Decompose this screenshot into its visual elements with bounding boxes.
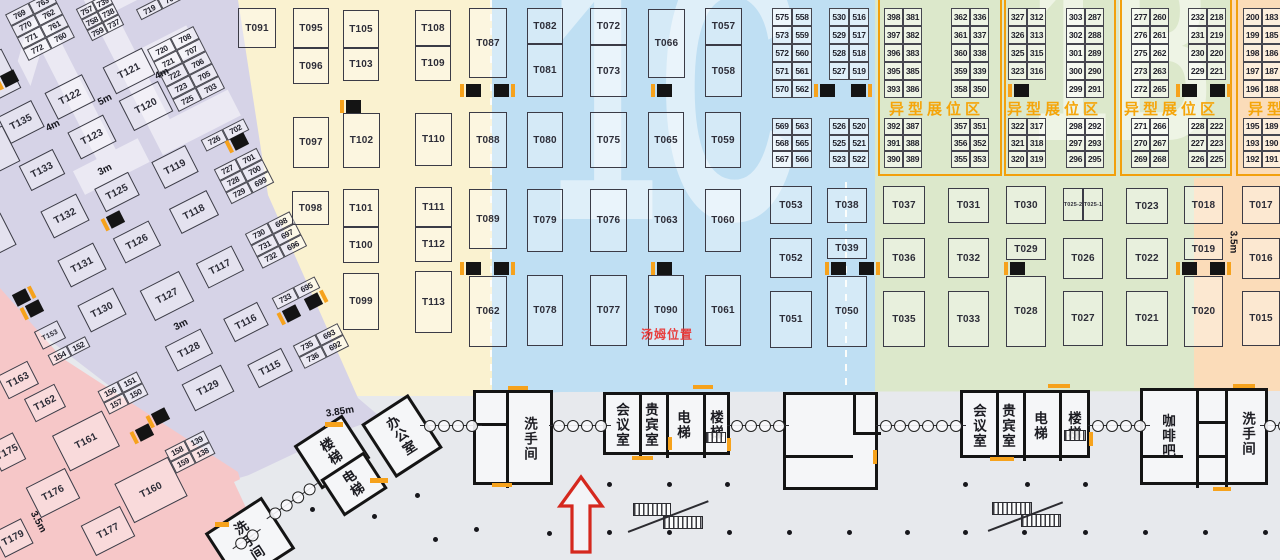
booth-T079: T079 (527, 189, 563, 252)
booth-entrance-marker (1182, 84, 1197, 97)
escalator-icon (706, 432, 726, 443)
booth-number-cell: 518 (849, 44, 869, 62)
booth-number-cell: 398 (884, 8, 903, 26)
floor-dot (1263, 530, 1268, 535)
booth-T022: T022 (1126, 238, 1168, 279)
door-strip-icon (511, 262, 515, 275)
booth-number-cell: 562 (792, 80, 812, 98)
booth-number-cell: 288 (1085, 26, 1104, 44)
booth-number-cell: 529 (829, 26, 849, 44)
booth-number-cell: 185 (1262, 26, 1280, 44)
shaped-booth-area-label: 异型展位区 (1248, 98, 1280, 119)
booth-entrance-marker (859, 262, 874, 275)
booth-number-cell: 273 (1131, 62, 1150, 80)
room-wall (639, 395, 642, 458)
booth-T057: T057 (705, 8, 742, 45)
door-marker (873, 450, 877, 464)
booth-number-cell: 226 (1188, 151, 1207, 168)
booth-number-cell: 527 (829, 62, 849, 80)
floor-dot (474, 527, 479, 532)
booth-number-cell: 191 (1262, 151, 1280, 168)
booth-number-pair-column: 526520525521523522 (829, 118, 869, 168)
exhibition-floorplan-canvas: 1E1C1B5755585735595725605715615705625695… (0, 0, 1280, 560)
booth-number-cell: 289 (1085, 44, 1104, 62)
booth-number-cell: 358 (951, 80, 970, 98)
booth-T050: T050 (827, 276, 867, 347)
column-circle (452, 420, 464, 432)
booth-T075: T075 (590, 112, 627, 168)
door-marker (508, 386, 528, 390)
column-circle (880, 420, 892, 432)
room-wall (506, 393, 509, 488)
booth-entrance-marker (494, 262, 509, 275)
door-strip-icon (651, 262, 655, 275)
booth-number-cell: 198 (1243, 44, 1262, 62)
booth-number-cell: 338 (970, 44, 989, 62)
door-marker (693, 385, 713, 389)
booth-T097: T097 (293, 117, 329, 168)
booth-number-cell: 222 (1207, 118, 1226, 135)
booth-number-cell: 219 (1207, 26, 1226, 44)
booth-T028: T028 (1006, 276, 1046, 347)
column-circle (922, 420, 934, 432)
floor-dot (607, 530, 612, 535)
booth-number-cell: 322 (1008, 118, 1027, 135)
floor-dot (787, 530, 792, 535)
floor-dot (433, 537, 438, 542)
booth-number-cell: 523 (829, 151, 849, 168)
booth-entrance-marker (466, 262, 481, 275)
door-marker (1213, 487, 1231, 491)
door-strip-icon (876, 262, 880, 275)
booth-number-cell: 320 (1008, 151, 1027, 168)
booth-number-cell: 390 (884, 151, 903, 168)
booth-T015: T015 (1242, 291, 1280, 346)
booth-number-cell: 389 (903, 151, 922, 168)
booth-number-cell: 393 (884, 80, 903, 98)
booth-number-cell: 232 (1188, 8, 1207, 26)
room-label: 电梯 (676, 411, 692, 441)
room-block (783, 392, 878, 490)
booth-number-cell: 350 (970, 80, 989, 98)
booth-number-pair-column: 575558573559572560571561570562 (772, 8, 812, 98)
booth-T087: T087 (469, 8, 507, 78)
booth-T066: T066 (648, 9, 685, 78)
booth-number-cell: 312 (1027, 8, 1046, 26)
booth-number-cell: 516 (849, 8, 869, 26)
booth-T052: T052 (770, 238, 812, 278)
booth-number-cell: 382 (903, 26, 922, 44)
booth-number-pair-column: 228222227223226225 (1188, 118, 1226, 168)
door-marker (1089, 432, 1093, 446)
room-wall (1059, 393, 1062, 461)
booth-T029: T029 (1006, 238, 1046, 260)
column-circle (1120, 420, 1132, 432)
door-marker (215, 522, 229, 527)
booth-number-cell: 351 (970, 118, 989, 135)
booth-number-cell: 561 (792, 62, 812, 80)
booth-number-cell: 190 (1262, 135, 1280, 152)
booth-T072: T072 (590, 8, 627, 45)
booth-number-cell: 558 (792, 8, 812, 26)
booth-number-cell: 200 (1243, 8, 1262, 26)
booth-T102: T102 (343, 113, 380, 168)
booth-number-cell: 568 (772, 135, 792, 152)
booth-T039: T039 (827, 238, 867, 259)
column-circle (1106, 420, 1118, 432)
booth-T113: T113 (415, 271, 452, 333)
column-circle (759, 420, 771, 432)
booth-number-cell: 262 (1150, 44, 1169, 62)
column-circle (1092, 420, 1104, 432)
column-row (553, 419, 607, 432)
booth-number-cell: 566 (792, 151, 812, 168)
column-row (880, 419, 962, 432)
booth-number-pair-column: 271266270267269268 (1131, 118, 1169, 168)
booth-number-cell: 267 (1150, 135, 1169, 152)
booth-T088: T088 (469, 112, 507, 168)
floor-dot (1025, 482, 1030, 487)
booth-number-cell: 230 (1188, 44, 1207, 62)
door-strip-icon (825, 262, 829, 275)
floor-dot (1083, 530, 1088, 535)
booth-entrance-marker (466, 84, 481, 97)
booth-number-cell: 187 (1262, 62, 1280, 80)
booth-entrance-marker (1010, 262, 1025, 275)
floor-dot (415, 493, 420, 498)
booth-T078: T078 (527, 275, 563, 346)
booth-number-cell: 303 (1066, 8, 1085, 26)
booth-T101: T101 (343, 189, 379, 227)
room-label: 洗手间 (1241, 413, 1257, 458)
booth-number-cell: 528 (829, 44, 849, 62)
column-circle (581, 420, 593, 432)
booth-number-cell: 231 (1188, 26, 1207, 44)
booth-T016: T016 (1242, 238, 1280, 279)
booth-T021: T021 (1126, 291, 1168, 346)
booth-number-cell: 355 (951, 151, 970, 168)
booth-number-cell: 316 (1027, 62, 1046, 80)
booth-T110: T110 (415, 113, 452, 166)
room-label: 会议室 (972, 405, 988, 450)
booth-number-cell: 261 (1150, 26, 1169, 44)
floor-dot (727, 530, 732, 535)
booth-number-cell: 192 (1243, 151, 1262, 168)
booth-T031: T031 (948, 188, 989, 223)
floor-dot (310, 507, 315, 512)
booth-number-cell: 559 (792, 26, 812, 44)
room-wall (1023, 393, 1026, 461)
booth-T111: T111 (415, 187, 452, 227)
booth-entrance-marker (831, 262, 846, 275)
door-strip-icon (460, 84, 464, 97)
door-marker (1233, 384, 1255, 388)
column-circle (553, 420, 565, 432)
booth-number-cell: 571 (772, 62, 792, 80)
booth-entrance-marker (494, 84, 509, 97)
booth-entrance-marker (851, 84, 866, 97)
door-marker (668, 437, 672, 450)
booth-number-pair-column: 303287302288301289300290299291 (1066, 8, 1104, 98)
booth-T036: T036 (883, 238, 925, 278)
booth-number-cell: 361 (951, 26, 970, 44)
booth-T060: T060 (705, 189, 741, 252)
room-label: 电梯 (1033, 412, 1049, 442)
booth-number-cell: 277 (1131, 8, 1150, 26)
booth-entrance-marker (1182, 262, 1197, 275)
booth-T095: T095 (293, 8, 329, 48)
booth-number-cell: 569 (772, 118, 792, 135)
column-circle (1264, 420, 1276, 432)
booth-number-cell: 388 (903, 135, 922, 152)
column-row (424, 419, 478, 432)
booth-number-cell: 270 (1131, 135, 1150, 152)
floor-dot (667, 482, 672, 487)
booth-T018: T018 (1184, 186, 1223, 224)
booth-number-cell: 326 (1008, 26, 1027, 44)
booth-number-cell: 301 (1066, 44, 1085, 62)
booth-number-pair-column: 232218231219230220229221 (1188, 8, 1226, 80)
booth-number-cell: 339 (970, 62, 989, 80)
column-circle (731, 420, 743, 432)
booth-T091: T091 (238, 8, 276, 48)
booth-number-cell: 570 (772, 80, 792, 98)
booth-number-cell: 298 (1066, 118, 1085, 135)
booth-T080: T080 (527, 112, 563, 168)
booth-number-cell: 392 (884, 118, 903, 135)
booth-T082: T082 (527, 8, 563, 44)
booth-T020: T020 (1184, 276, 1223, 347)
shaped-booth-area-label: 异型展位区 (1007, 98, 1102, 119)
booth-number-cell: 573 (772, 26, 792, 44)
booth-T017: T017 (1242, 186, 1280, 224)
booth-number-cell: 567 (772, 151, 792, 168)
booth-entrance-marker (657, 84, 672, 97)
booth-T019: T019 (1184, 238, 1223, 260)
column-circle (424, 420, 436, 432)
room-label: 贵宾室 (644, 404, 660, 449)
door-strip-icon (1176, 262, 1180, 275)
booth-T108: T108 (415, 10, 451, 46)
booth-number-cell: 199 (1243, 26, 1262, 44)
booth-number-pair-column: 392387391388390389 (884, 118, 922, 168)
shaped-booth-area-label: 异型展位区 (1124, 98, 1219, 119)
column-circle (950, 420, 962, 432)
booth-T026: T026 (1063, 238, 1103, 279)
booth-number-cell: 362 (951, 8, 970, 26)
booth-number-cell: 396 (884, 44, 903, 62)
room-block: 洗手间 (473, 390, 553, 485)
booth-number-pair-column: 569563568565567566 (772, 118, 812, 168)
booth-number-cell: 218 (1207, 8, 1226, 26)
room-label: 洗手间 (523, 418, 539, 463)
door-marker (492, 483, 512, 487)
booth-number-cell: 195 (1243, 118, 1262, 135)
booth-number-cell: 302 (1066, 26, 1085, 44)
column-row (731, 419, 785, 432)
booth-number-cell: 572 (772, 44, 792, 62)
booth-number-pair-column: 357351356352355353 (951, 118, 989, 168)
booth-number-cell: 391 (884, 135, 903, 152)
booth-number-cell: 381 (903, 8, 922, 26)
booth-T053: T053 (770, 186, 812, 224)
booth-T098: T098 (292, 191, 329, 225)
booth-entrance-marker (1210, 84, 1225, 97)
door-marker (1048, 384, 1070, 388)
booth-number-cell: 268 (1150, 151, 1169, 168)
booth-number-cell: 293 (1085, 135, 1104, 152)
booth-number-cell: 321 (1008, 135, 1027, 152)
booth-entrance-marker (657, 262, 672, 275)
booth-number-cell: 266 (1150, 118, 1169, 135)
door-strip-icon (1227, 84, 1231, 97)
booth-number-cell: 356 (951, 135, 970, 152)
column-circle (567, 420, 579, 432)
booth-T073: T073 (590, 45, 627, 97)
booth-number-cell: 521 (849, 135, 869, 152)
booth-number-pair-column: 277260276261275262273263272265 (1131, 8, 1169, 98)
door-strip-icon (651, 84, 655, 97)
booth-T077: T077 (590, 275, 627, 346)
booth-number-cell: 196 (1243, 80, 1262, 98)
door-strip-icon (460, 262, 464, 275)
room-block: 咖啡吧洗手间 (1140, 388, 1268, 485)
booth-number-cell: 337 (970, 26, 989, 44)
booth-number-cell: 296 (1066, 151, 1085, 168)
escalator-icon (633, 503, 671, 516)
booth-number-pair-column: 530516529517528518527519 (829, 8, 869, 80)
floor-dot (963, 482, 968, 487)
column-circle (438, 420, 450, 432)
room-wall (1196, 455, 1226, 458)
room-wall (853, 432, 881, 435)
booth-number-cell: 183 (1262, 8, 1280, 26)
door-marker (990, 457, 1014, 461)
booth-T059: T059 (705, 112, 741, 168)
booth-number-pair-column: 398381397382396383395385393386 (884, 8, 922, 98)
floor-dot (1083, 482, 1088, 487)
door-marker (727, 438, 731, 451)
room-wall (1225, 391, 1228, 488)
door-strip-icon (511, 84, 515, 97)
booth-T099: T099 (343, 273, 379, 330)
booth-number-cell: 353 (970, 151, 989, 168)
column-circle (595, 420, 607, 432)
booth-number-cell: 299 (1066, 80, 1085, 98)
booth-number-cell: 189 (1262, 118, 1280, 135)
booth-number-cell: 271 (1131, 118, 1150, 135)
booth-number-cell: 525 (829, 135, 849, 152)
booth-T025-1: T025-1 (1083, 188, 1103, 221)
booth-number-cell: 517 (849, 26, 869, 44)
room-label: 咖啡吧 (1161, 415, 1177, 460)
door-strip-icon (340, 100, 344, 113)
room-label: 电梯 (339, 467, 369, 501)
room-label: 会议室 (615, 404, 631, 449)
room-block: 会议室贵宾室电梯楼梯 (603, 392, 730, 455)
room-wall (786, 455, 853, 458)
floor-dot (607, 482, 612, 487)
column-row (1092, 419, 1146, 432)
booth-T065: T065 (648, 112, 684, 168)
booth-number-cell: 263 (1150, 62, 1169, 80)
booth-number-cell: 325 (1008, 44, 1027, 62)
booth-number-cell: 228 (1188, 118, 1207, 135)
booth-number-cell: 229 (1188, 62, 1207, 80)
booth-number-cell: 357 (951, 118, 970, 135)
booth-number-cell: 290 (1085, 62, 1104, 80)
booth-T037: T037 (883, 186, 925, 224)
booth-T105: T105 (343, 10, 379, 48)
booth-T030: T030 (1006, 186, 1046, 224)
booth-number-cell: 292 (1085, 118, 1104, 135)
door-strip-icon (1008, 84, 1012, 97)
booth-number-cell: 519 (849, 62, 869, 80)
booth-number-cell: 272 (1131, 80, 1150, 98)
booth-T027: T027 (1063, 291, 1103, 346)
booth-T109: T109 (415, 46, 451, 81)
booth-number-cell: 395 (884, 62, 903, 80)
booth-number-pair-column: 327312326313325315323316 (1008, 8, 1046, 80)
column-circle (908, 420, 920, 432)
door-strip-icon (0, 77, 4, 90)
column-circle (1134, 420, 1146, 432)
booth-number-cell: 319 (1027, 151, 1046, 168)
column-circle (773, 420, 785, 432)
room-wall (853, 395, 856, 435)
door-strip-icon (1227, 262, 1231, 275)
floor-dot (1022, 530, 1027, 535)
booth-number-cell: 291 (1085, 80, 1104, 98)
booth-T089: T089 (469, 189, 507, 249)
booth-number-cell: 223 (1207, 135, 1226, 152)
escalator-icon (663, 516, 703, 529)
booth-number-cell: 225 (1207, 151, 1226, 168)
floor-dot (1143, 530, 1148, 535)
booth-number-cell: 269 (1131, 151, 1150, 168)
room-wall (703, 395, 706, 458)
escalator-icon (1064, 430, 1086, 441)
booth-T103: T103 (343, 48, 379, 81)
booth-number-cell: 318 (1027, 135, 1046, 152)
room-wall (1196, 391, 1199, 488)
floor-dot (547, 531, 552, 536)
booth-T032: T032 (948, 238, 989, 278)
booth-number-cell: 186 (1262, 44, 1280, 62)
booth-T025-2: T025-2 (1063, 188, 1083, 221)
door-strip-icon (814, 84, 818, 97)
booth-T100: T100 (343, 227, 379, 263)
column-circle (936, 420, 948, 432)
booth-number-cell: 563 (792, 118, 812, 135)
tom-location-note: 汤姆位置 (641, 326, 693, 343)
booth-T035: T035 (883, 291, 925, 347)
floor-dot (963, 530, 968, 535)
booth-number-cell: 360 (951, 44, 970, 62)
booth-number-cell: 352 (970, 135, 989, 152)
door-strip-icon (868, 84, 872, 97)
booth-number-cell: 336 (970, 8, 989, 26)
booth-number-cell: 383 (903, 44, 922, 62)
door-marker (370, 478, 388, 483)
booth-number-cell: 317 (1027, 118, 1046, 135)
floor-dot (725, 482, 730, 487)
booth-T058: T058 (705, 45, 742, 97)
booth-number-cell: 275 (1131, 44, 1150, 62)
booth-T062: T062 (469, 276, 507, 347)
booth-number-cell: 386 (903, 80, 922, 98)
booth-number-pair-column: 195189193190192191 (1243, 118, 1280, 168)
